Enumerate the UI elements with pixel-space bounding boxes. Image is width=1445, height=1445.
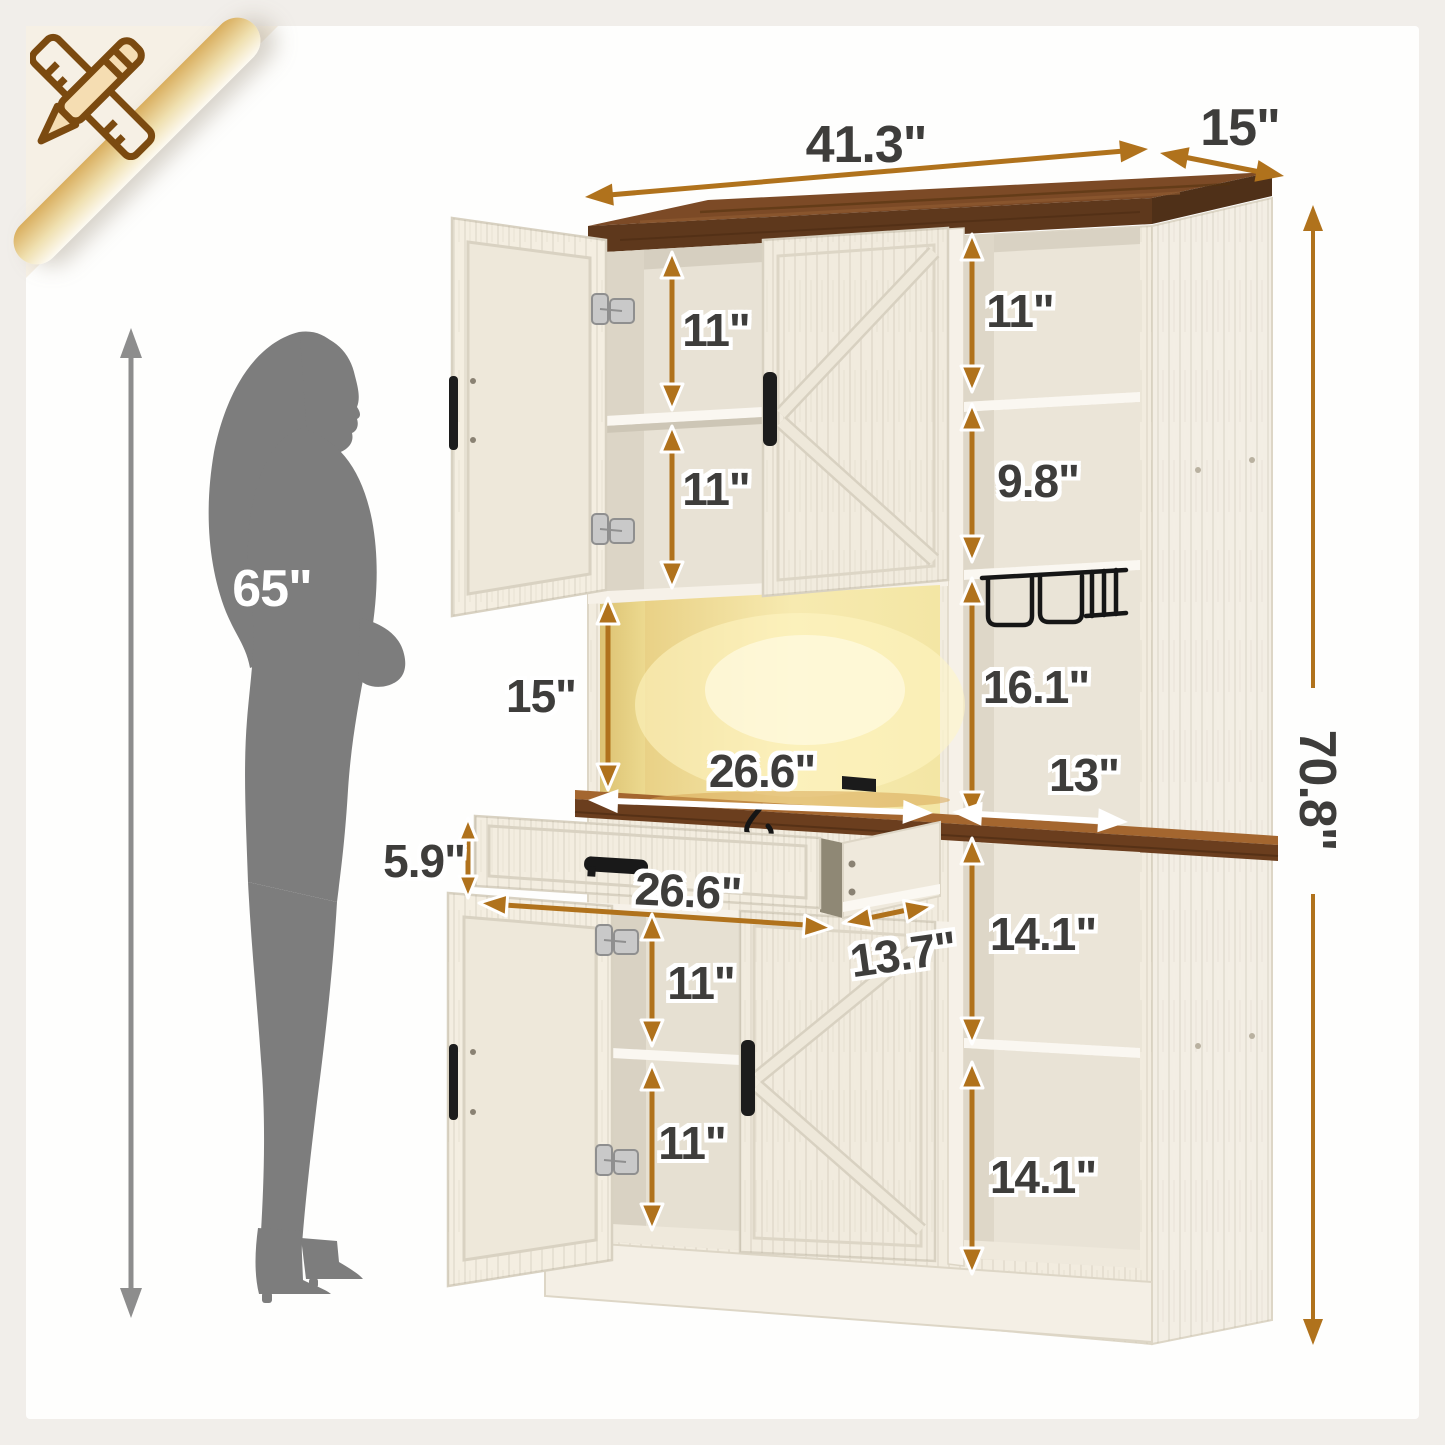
lower-left-open-door <box>448 893 638 1286</box>
dim-total-width: 41.3" <box>806 115 927 175</box>
upper-cabinet-interior <box>605 243 763 604</box>
cabinet-illustration <box>448 172 1278 1344</box>
dim-person-height: 65" <box>232 559 312 619</box>
upper-left-open-door <box>449 218 634 616</box>
dim-hutch-open-height: 15" <box>506 669 576 723</box>
product-dimension-diagram: 41.3" 15" 70.8" 65" 11" 11" 11" 9.8" 15"… <box>0 0 1445 1445</box>
door-hinge <box>596 1145 638 1175</box>
dim-total-depth: 15" <box>1200 98 1280 158</box>
door-hinge <box>596 925 638 955</box>
door-hinge <box>592 514 634 544</box>
scene-illustration <box>0 0 1445 1445</box>
upper-left-door-handle <box>449 376 458 450</box>
dim-drawer-width: 26.6" <box>633 861 742 920</box>
dim-lower-right-cubby-top: 14.1" <box>990 907 1096 961</box>
dim-total-height: 70.8" <box>1287 730 1347 851</box>
dim-right-mid-cubby-depth: 13" <box>1049 748 1119 802</box>
dim-lower-left-shelf-bottom: 11" <box>658 1116 725 1170</box>
dim-lower-left-shelf-top: 11" <box>667 956 734 1010</box>
dim-lower-right-cubby-bottom: 14.1" <box>990 1150 1096 1204</box>
upper-barn-door-handle <box>763 372 777 446</box>
door-hinge <box>592 294 634 324</box>
lower-barn-door-handle <box>741 1040 755 1116</box>
dim-right-mid-cubby-height: 16.1" <box>983 660 1089 714</box>
dim-hutch-open-width: 26.6" <box>709 744 815 798</box>
lower-left-door-handle <box>449 1044 458 1120</box>
dim-upper-left-shelf-top: 11" <box>682 303 749 357</box>
upper-barn-door <box>763 228 948 596</box>
dim-upper-left-shelf-bottom: 11" <box>682 462 749 516</box>
woman-silhouette-icon <box>209 331 406 1303</box>
dim-drawer-height: 5.9" <box>383 834 465 888</box>
dim-upper-right-cubby-middle: 9.8" <box>997 454 1079 508</box>
dim-upper-right-cubby-top: 11" <box>986 284 1053 338</box>
lower-right-cubbies <box>964 842 1140 1268</box>
